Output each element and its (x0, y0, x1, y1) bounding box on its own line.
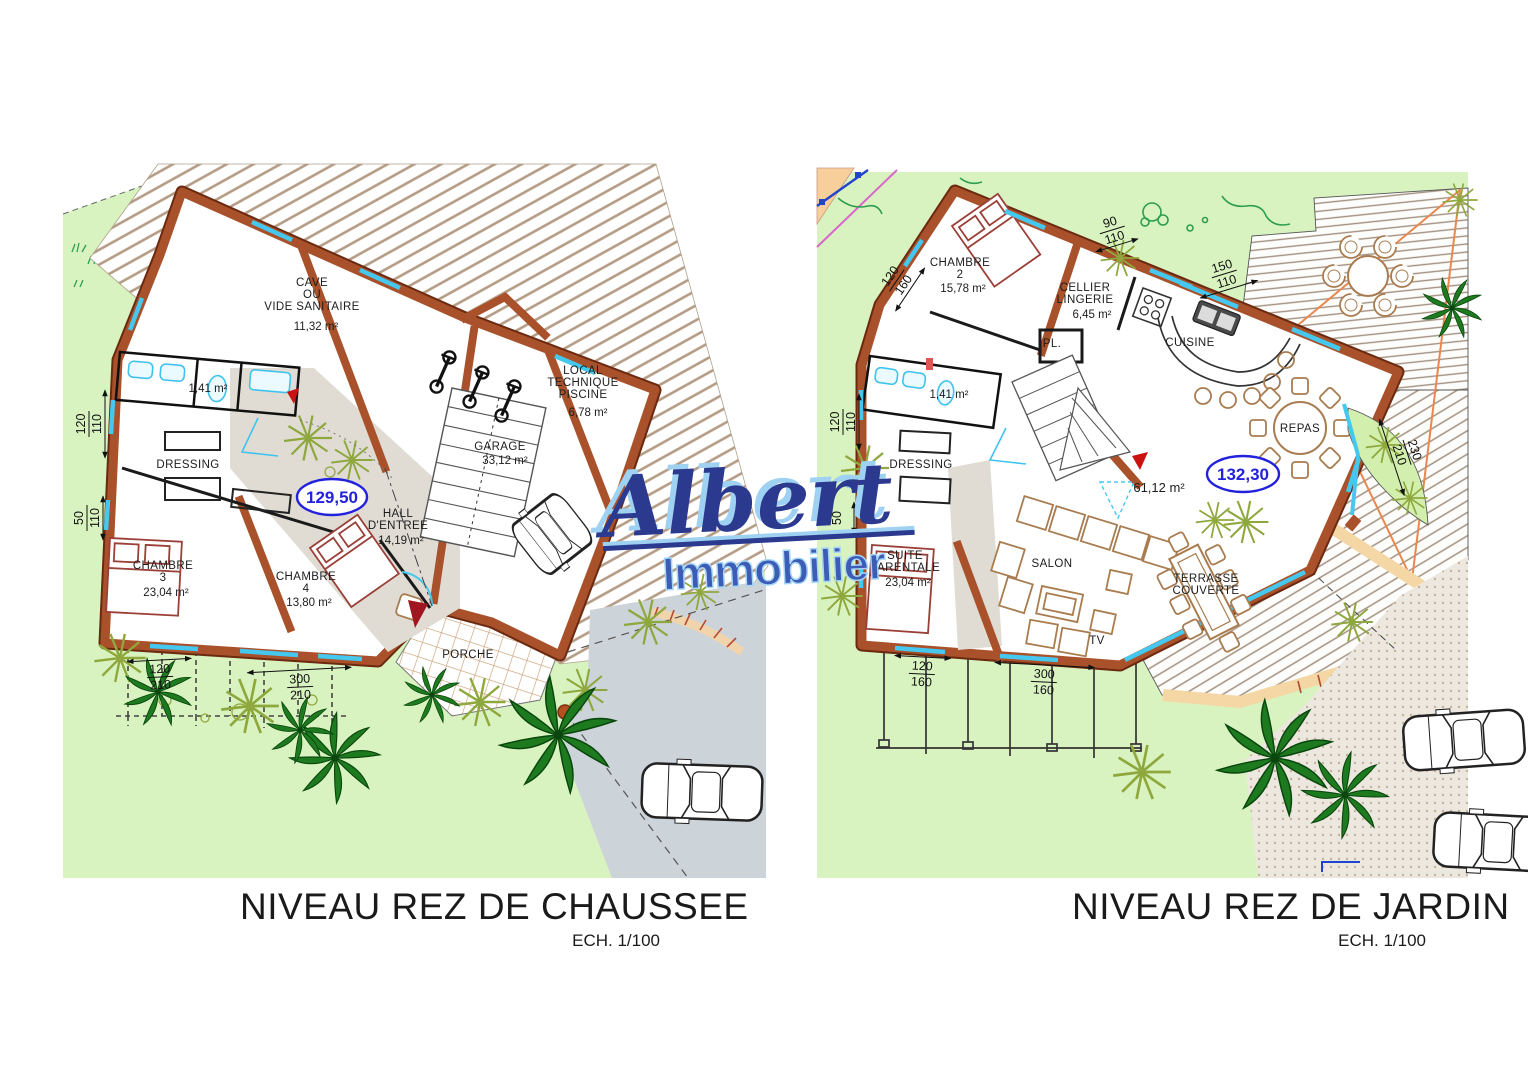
company-logo: Albert Immobilier (599, 450, 918, 600)
left-total-area-badge: 129,50 (297, 479, 367, 515)
room-chambre2: CHAMBRE (930, 257, 990, 269)
svg-text:120: 120 (74, 414, 88, 435)
bath-marker (926, 358, 933, 370)
svg-text:110: 110 (844, 412, 858, 432)
svg-text:120: 120 (149, 661, 171, 676)
sink-icon (902, 371, 926, 389)
room-tv: TV (1089, 635, 1105, 647)
svg-text:TECHNIQUE: TECHNIQUE (547, 377, 618, 389)
svg-text:110: 110 (88, 508, 102, 528)
svg-text:D'ENTREE: D'ENTREE (368, 520, 428, 532)
room-chambre4-area: 13,80 m² (286, 597, 332, 609)
svg-text:2: 2 (957, 269, 964, 281)
room-chambre3: CHAMBRE (133, 560, 193, 572)
right-parked-car-1 (1402, 704, 1526, 776)
svg-text:120: 120 (911, 658, 933, 673)
right-total-area-badge: 132,30 (1207, 456, 1279, 492)
svg-text:VIDE SANITAIRE: VIDE SANITAIRE (264, 301, 360, 313)
room-porche: PORCHE (442, 649, 494, 661)
room-hall-area: 14,19 m² (378, 535, 424, 547)
sink-icon (128, 361, 153, 379)
svg-text:LINGERIE: LINGERIE (1057, 294, 1114, 306)
svg-text:120: 120 (828, 412, 842, 433)
bed-chambre3 (106, 538, 182, 616)
right-parked-car-2 (1432, 807, 1528, 877)
room-repas: REPAS (1280, 423, 1320, 435)
room-chambre4: CHAMBRE (276, 571, 336, 583)
room-cave: CAVE (296, 277, 328, 289)
svg-text:3: 3 (160, 572, 167, 584)
svg-text:OU: OU (303, 289, 321, 301)
right-plan-scale: ECH. 1/100 (1072, 931, 1472, 951)
room-garage: GARAGE (474, 441, 526, 453)
floor-plan-sheet: CAVE OU VIDE SANITAIRE 11,32 m² LOCAL TE… (0, 0, 1528, 1080)
bathtub-icon (249, 369, 291, 392)
svg-text:300: 300 (289, 671, 311, 686)
room-chambre2-area: 15,78 m² (940, 283, 986, 295)
room-local-area: 6,78 m² (569, 407, 608, 419)
room-cuisine: CUISINE (1165, 337, 1214, 349)
room-local-technique: LOCAL (563, 365, 603, 377)
svg-text:129,50: 129,50 (306, 488, 358, 507)
svg-text:COUVERTE: COUVERTE (1173, 585, 1240, 597)
room-bath-area: 1,41 m² (189, 383, 228, 395)
left-plan-title: NIVEAU REZ DE CHAUSSEE (240, 886, 700, 928)
left-parked-car (641, 758, 763, 826)
logo-subtitle-text: Immobilier (661, 538, 917, 597)
room-hall: HALL (383, 508, 414, 520)
svg-text:160: 160 (1033, 682, 1055, 697)
left-plan-caption: NIVEAU REZ DE CHAUSSEE ECH. 1/100 (240, 886, 700, 951)
room-cellier-area: 6,45 m² (1073, 309, 1112, 321)
logo-brand-text: Albert (599, 450, 915, 550)
room-cave-area: 11,32 m² (294, 321, 339, 333)
right-plan-caption: NIVEAU REZ DE JARDIN ECH. 1/100 (1072, 886, 1472, 951)
svg-text:110: 110 (90, 414, 104, 434)
svg-text:160: 160 (911, 674, 933, 689)
room-placard: PL. (1043, 338, 1061, 350)
room-garage-area: 33,12 m² (482, 455, 528, 467)
svg-text:300: 300 (1033, 666, 1055, 681)
svg-text:PISCINE: PISCINE (559, 389, 608, 401)
right-plan-title: NIVEAU REZ DE JARDIN (1072, 886, 1472, 928)
room-terrasse: TERRASSE (1173, 573, 1238, 585)
area-note: 61,12 m² (1133, 480, 1185, 495)
room-salon: SALON (1032, 558, 1073, 570)
sink-icon (160, 364, 185, 382)
svg-text:132,30: 132,30 (1217, 465, 1269, 484)
sink-icon (874, 367, 898, 385)
left-plan-scale: ECH. 1/100 (240, 931, 700, 951)
room-cellier: CELLIER (1060, 282, 1111, 294)
svg-text:50: 50 (72, 511, 86, 525)
room-bath-area-right: 1,41 m² (930, 389, 969, 401)
right-plan: CHAMBRE 2 15,78 m² CELLIER LINGERIE 6,45… (817, 168, 1528, 878)
svg-text:210: 210 (150, 677, 172, 692)
room-chambre3-area: 23,04 m² (143, 587, 189, 599)
room-dressing: DRESSING (156, 459, 219, 471)
svg-text:210: 210 (290, 687, 312, 702)
svg-text:4: 4 (303, 583, 310, 595)
